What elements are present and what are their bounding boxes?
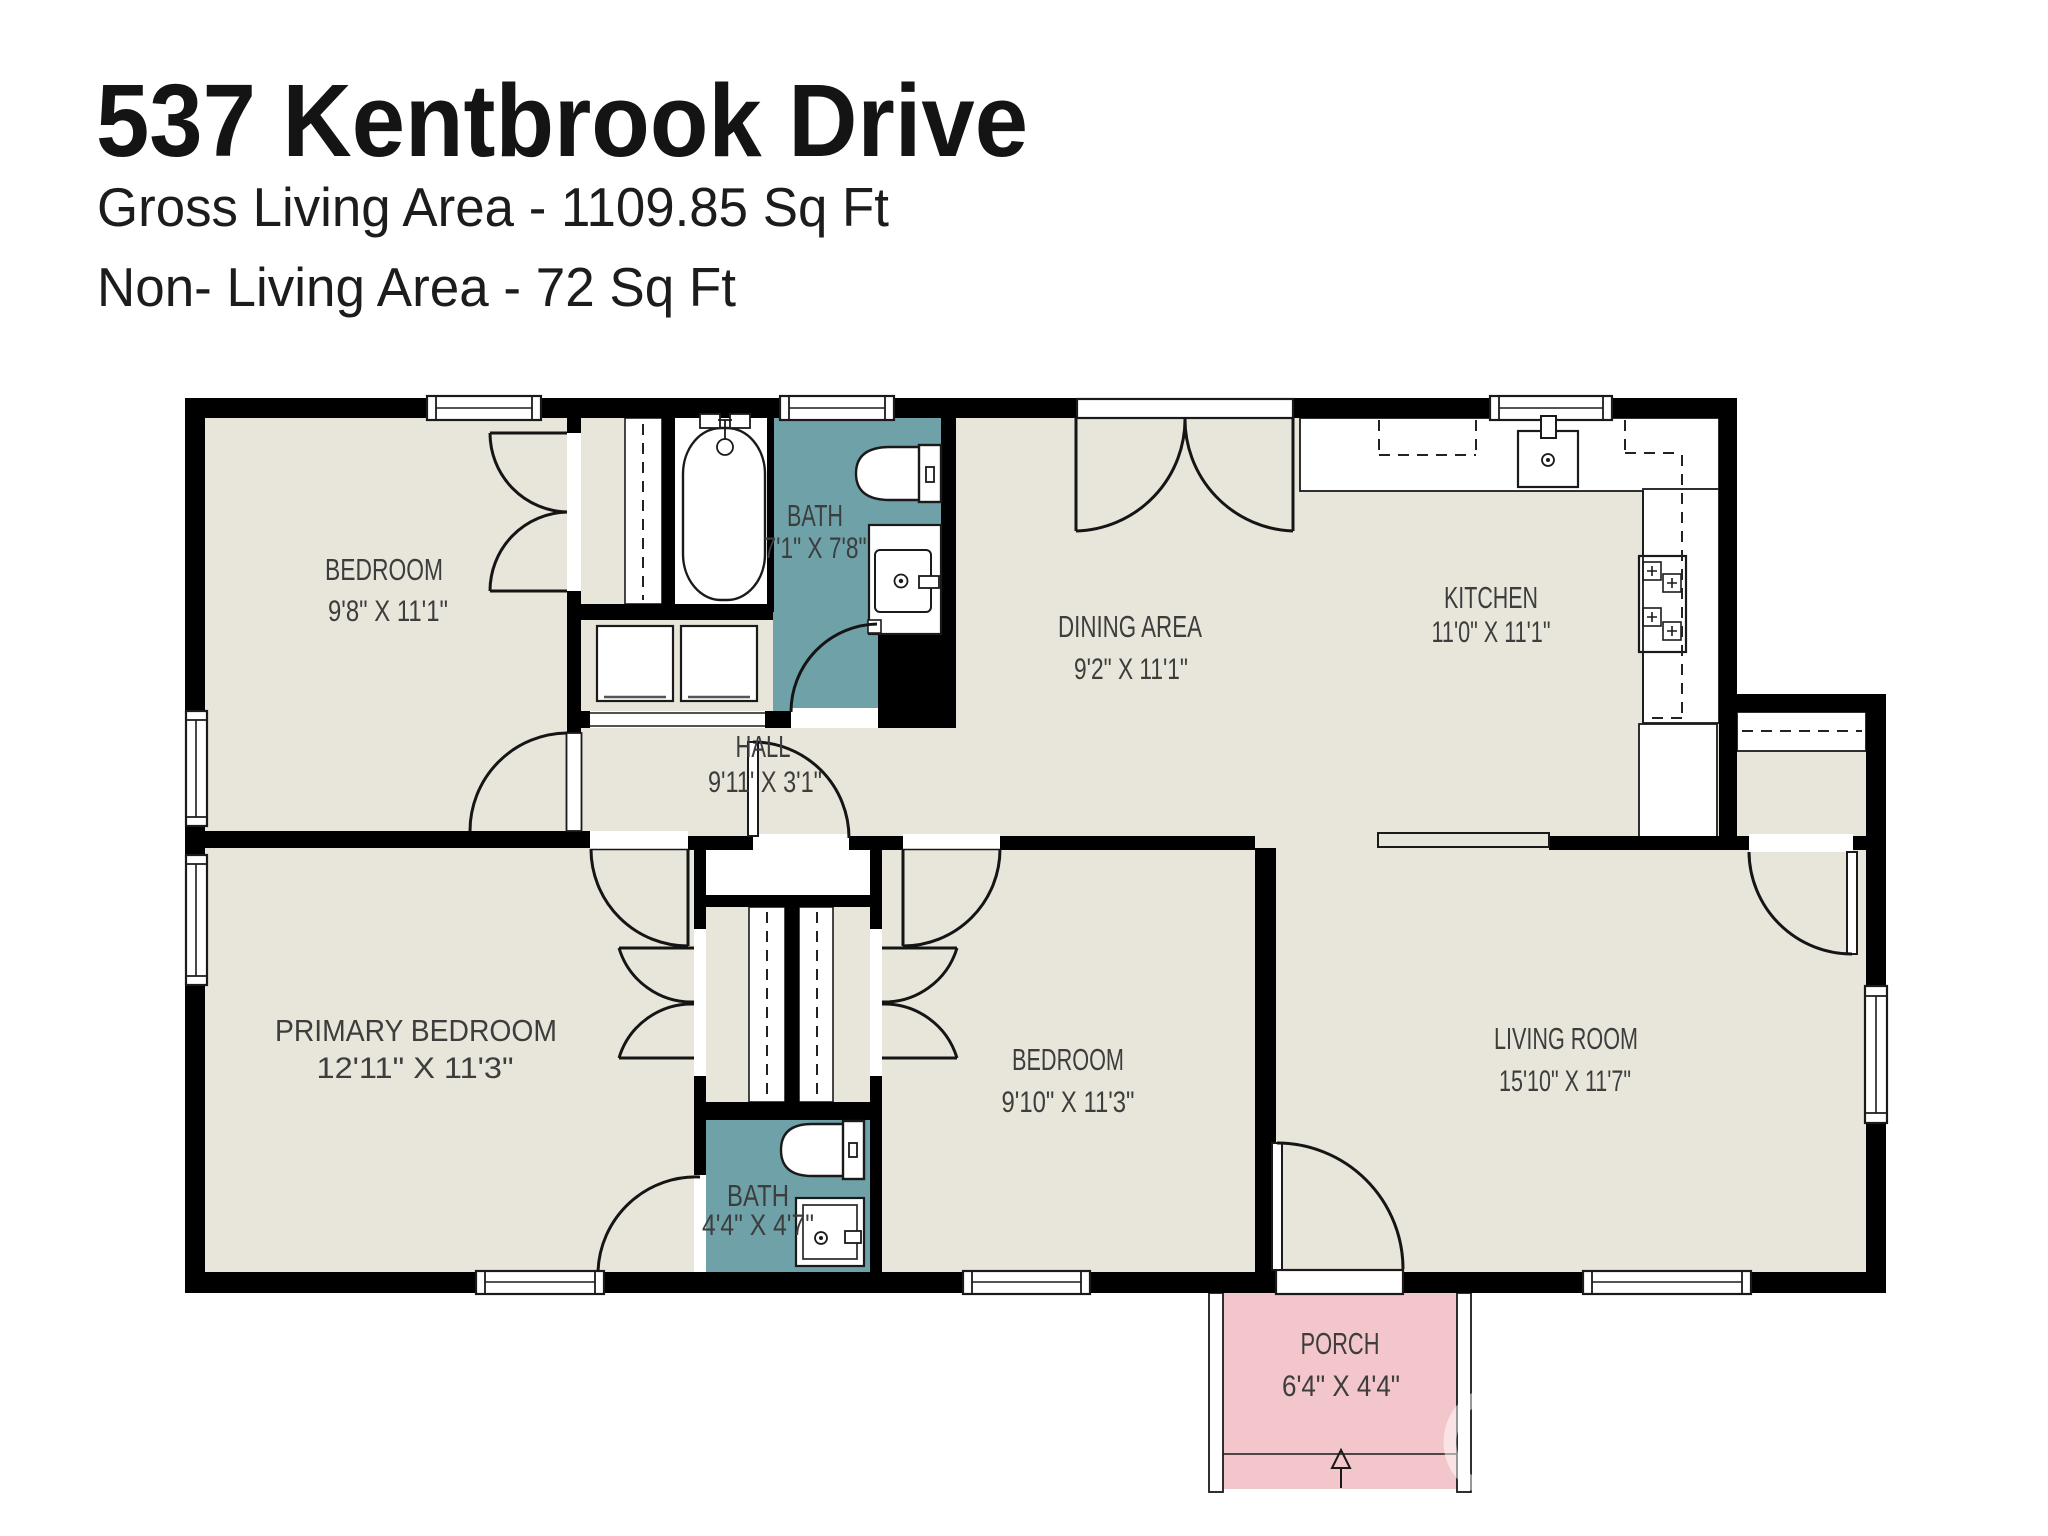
svg-text:7'1" X 7'8": 7'1" X 7'8" [764,532,867,565]
svg-text:BATH: BATH [787,498,843,533]
svg-text:BEDROOM: BEDROOM [325,552,443,587]
svg-text:KITCHEN: KITCHEN [1444,580,1538,615]
svg-text:537 Kentbrook Drive: 537 Kentbrook Drive [96,63,1028,178]
svg-text:BATH: BATH [727,1178,789,1213]
svg-text:PRIMARY BEDROOM: PRIMARY BEDROOM [275,1013,557,1048]
svg-text:9'2" X 11'1": 9'2" X 11'1" [1074,653,1188,686]
svg-text:LIVING ROOM: LIVING ROOM [1494,1021,1638,1056]
svg-text:6'4" X 4'4": 6'4" X 4'4" [1282,1370,1400,1403]
svg-text:12'11" X 11'3": 12'11" X 11'3" [317,1052,514,1085]
svg-text:Gross Living Area - 1109.85 Sq: Gross Living Area - 1109.85 Sq Ft [97,176,889,238]
svg-text:11'0" X 11'1": 11'0" X 11'1" [1432,616,1551,649]
svg-text:9'8" X 11'1": 9'8" X 11'1" [328,595,448,628]
svg-text:9'11' X 3'1": 9'11' X 3'1" [708,766,822,799]
svg-text:4'4" X 4'7": 4'4" X 4'7" [702,1209,814,1242]
svg-text:9'10" X 11'3": 9'10" X 11'3" [1002,1086,1135,1119]
svg-text:BEDROOM: BEDROOM [1012,1042,1124,1077]
svg-text:HALL: HALL [736,729,791,764]
svg-text:Non- Living Area - 72 Sq Ft: Non- Living Area - 72 Sq Ft [97,256,736,318]
svg-text:PORCH: PORCH [1301,1326,1380,1361]
svg-text:15'10" X 11'7": 15'10" X 11'7" [1499,1065,1631,1098]
svg-text:DINING AREA: DINING AREA [1058,609,1202,644]
